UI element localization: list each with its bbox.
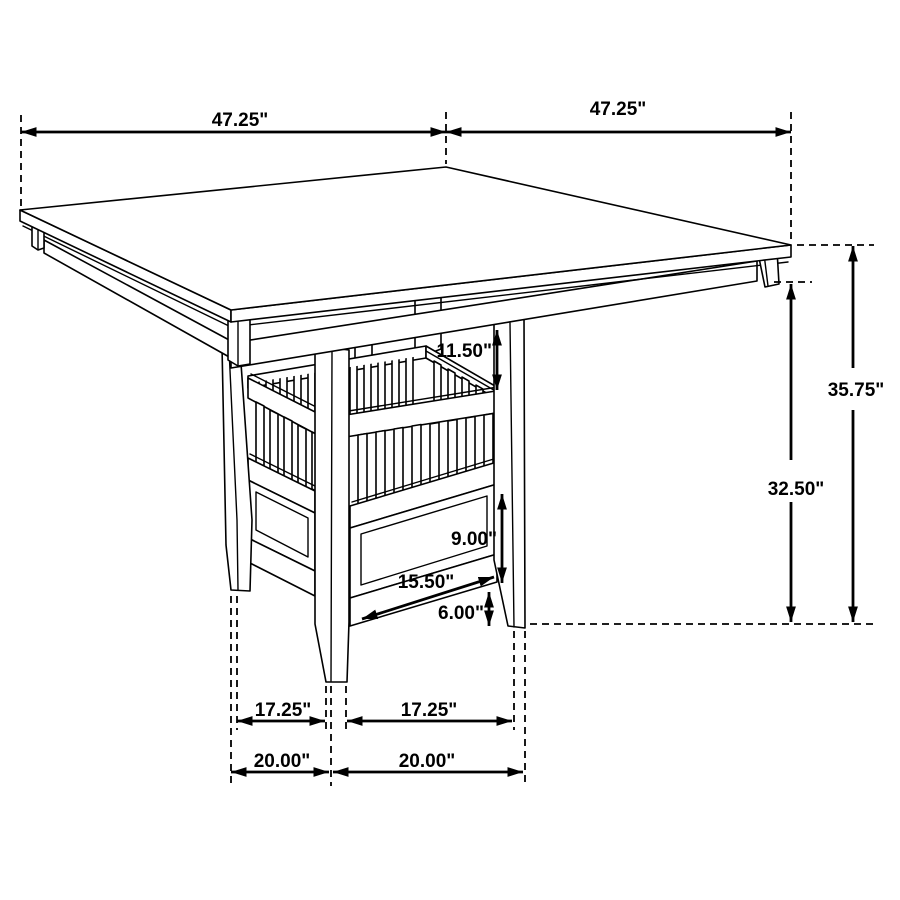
table-technical-drawing: 47.25" 47.25" 35.75" 32.50" 11.50" 9.00"… xyxy=(0,0,900,900)
dim-label-storage-width: 15.50" xyxy=(398,572,455,593)
dim-label-storage-height: 9.00" xyxy=(451,529,497,550)
dimension-overall-height: 35.75" xyxy=(828,246,885,622)
dimension-apron-height: 32.50" xyxy=(768,284,825,622)
dimension-feet-inner-left: 17.25" xyxy=(237,700,325,721)
dim-label-apron-to-basket: 11.50" xyxy=(436,341,492,362)
dim-label-clearance: 6.00" xyxy=(438,603,484,624)
dim-label-feet-inner-right: 17.25" xyxy=(401,700,458,721)
dim-label-apron-height: 32.50" xyxy=(768,479,825,500)
dim-label-overall-height: 35.75" xyxy=(828,380,885,401)
dimension-top-left: 47.25" xyxy=(21,110,446,132)
dim-label-feet-outer-left: 20.00" xyxy=(254,751,311,772)
dimension-feet-outer-left: 20.00" xyxy=(231,751,329,772)
dimension-diagram-page: 47.25" 47.25" 35.75" 32.50" 11.50" 9.00"… xyxy=(0,0,900,900)
dim-label-top-width-left: 47.25" xyxy=(212,110,269,131)
dim-label-top-width-right: 47.25" xyxy=(590,99,647,120)
leg-east xyxy=(494,317,525,628)
dimension-top-right: 47.25" xyxy=(446,99,791,132)
dimension-feet-outer-right: 20.00" xyxy=(333,751,523,772)
dim-label-feet-inner-left: 17.25" xyxy=(255,700,312,721)
dimension-feet-inner-right: 17.25" xyxy=(347,700,512,721)
dim-label-feet-outer-right: 20.00" xyxy=(399,751,456,772)
